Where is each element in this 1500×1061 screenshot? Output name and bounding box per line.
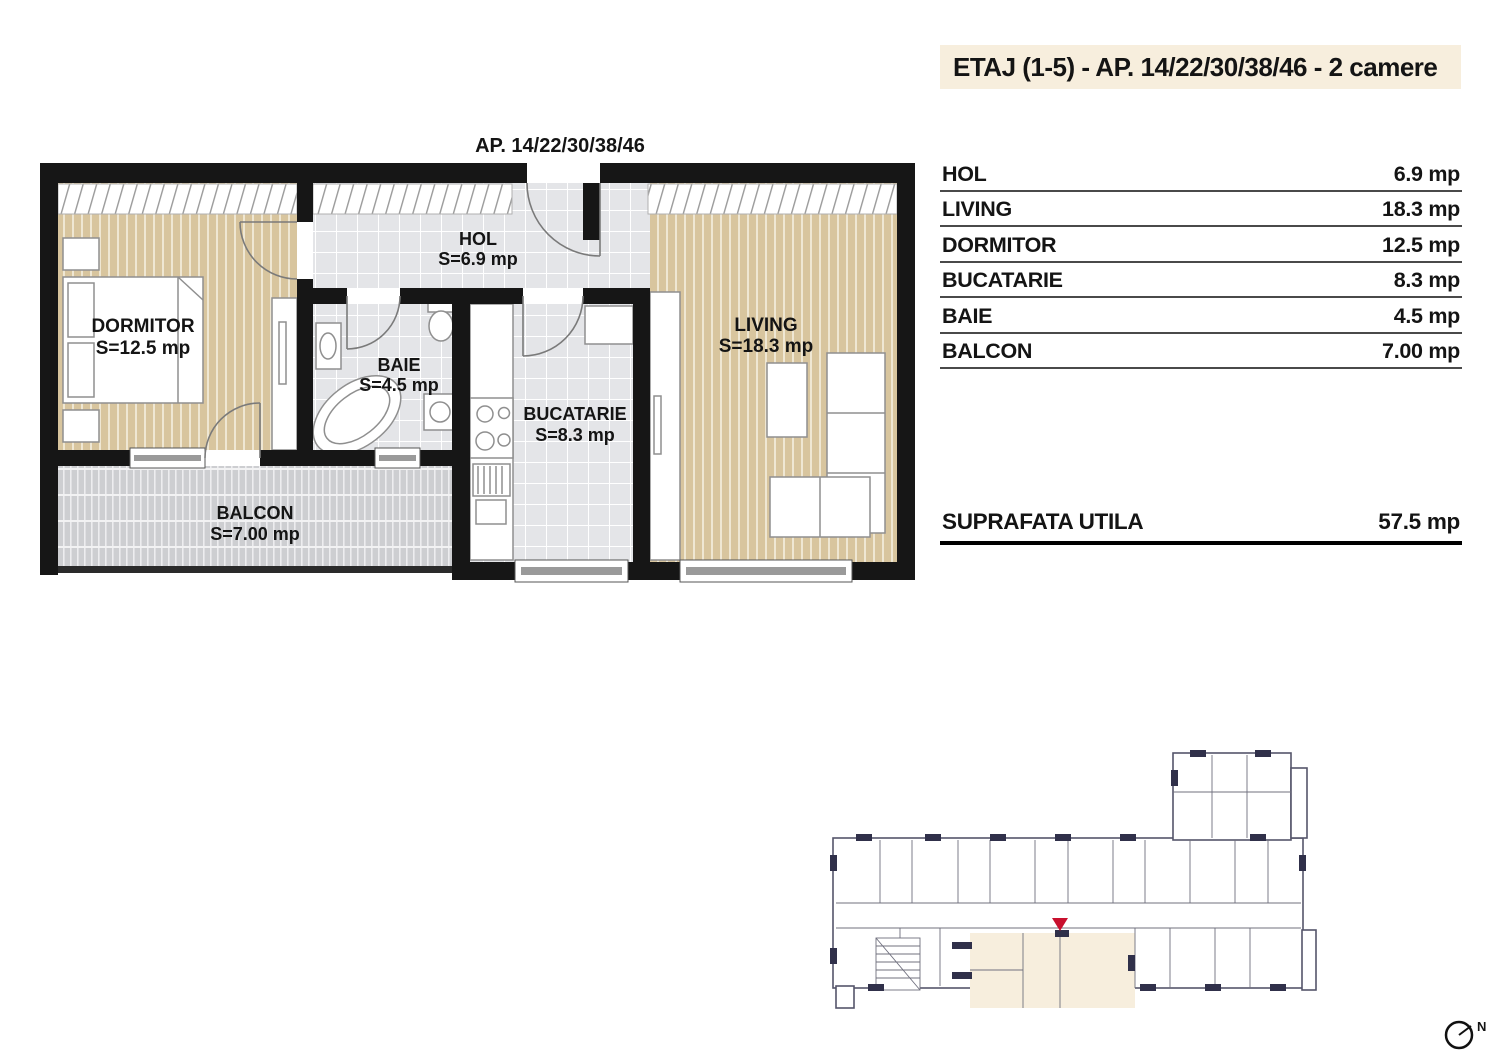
- area-row-value: 4.5 mp: [1394, 304, 1460, 329]
- wardrobe-icon: [58, 184, 297, 214]
- kitchen-sink-icon: [473, 464, 510, 524]
- wardrobe-hatch-bands: [58, 184, 897, 214]
- room-label-living: LIVING: [734, 315, 797, 336]
- apartment-plan-page: AP. 14/22/30/38/46 DORMITOR S=12.5 mp BA…: [0, 0, 1500, 1061]
- wardrobe-icon: [313, 184, 512, 214]
- area-row: BALCON 7.00 mp: [940, 334, 1462, 370]
- floor-header: ETAJ (1-5) - AP. 14/22/30/38/46 - 2 came…: [940, 45, 1461, 89]
- area-table: HOL 6.9 mp LIVING 18.3 mp DORMITOR 12.5 …: [940, 156, 1462, 369]
- window-glyph: [375, 448, 420, 468]
- area-row-label: BALCON: [942, 339, 1032, 364]
- area-row: HOL 6.9 mp: [940, 156, 1462, 192]
- room-area-bucatarie: S=8.3 mp: [535, 425, 615, 445]
- room-area-living: S=18.3 mp: [719, 336, 814, 357]
- room-label-balcon: BALCON: [217, 503, 294, 523]
- room-label-bucatarie: BUCATARIE: [523, 404, 626, 424]
- area-row: DORMITOR 12.5 mp: [940, 227, 1462, 263]
- area-row-value: 7.00 mp: [1382, 339, 1460, 364]
- sink-icon: [316, 323, 341, 369]
- nightstand-icon: [63, 410, 99, 442]
- toilet-icon: [428, 300, 454, 341]
- total-row: SUPRAFATA UTILA 57.5 mp: [940, 508, 1462, 545]
- radiator-icon: [654, 396, 661, 454]
- area-row-label: BAIE: [942, 304, 992, 329]
- stove-icon: [470, 398, 513, 458]
- area-row-label: DORMITOR: [942, 233, 1056, 258]
- nightstand-icon: [63, 238, 99, 270]
- area-row: LIVING 18.3 mp: [940, 192, 1462, 228]
- total-label: SUPRAFATA UTILA: [942, 509, 1143, 535]
- area-row-label: LIVING: [942, 197, 1012, 222]
- building-keyplan: N: [830, 750, 1486, 1048]
- total-value: 57.5 mp: [1378, 509, 1460, 535]
- room-area-balcon: S=7.00 mp: [210, 524, 300, 544]
- area-row: BUCATARIE 8.3 mp: [940, 263, 1462, 299]
- area-row-value: 18.3 mp: [1382, 197, 1460, 222]
- room-label-dormitor: DORMITOR: [91, 316, 194, 337]
- balcony-edge: [58, 566, 452, 573]
- compass-north-label: N: [1477, 1019, 1486, 1034]
- room-area-hol: S=6.9 mp: [438, 249, 518, 269]
- wardrobe-icon: [648, 184, 897, 214]
- plan-title: AP. 14/22/30/38/46: [475, 135, 645, 157]
- compass-icon: N: [1446, 1019, 1486, 1048]
- room-area-dormitor: S=12.5 mp: [96, 338, 191, 359]
- area-row-value: 6.9 mp: [1394, 162, 1460, 187]
- area-row: BAIE 4.5 mp: [940, 298, 1462, 334]
- washing-machine-icon: [424, 394, 456, 430]
- area-row-label: BUCATARIE: [942, 268, 1063, 293]
- area-row-value: 8.3 mp: [1394, 268, 1460, 293]
- window-glyph: [130, 448, 205, 468]
- window-glyph: [680, 560, 852, 582]
- fridge-icon: [585, 306, 633, 344]
- keyplan-highlight-unit: [970, 933, 1135, 1008]
- radiator-icon: [279, 322, 286, 384]
- coffee-table-icon: [767, 363, 807, 437]
- room-label-baie: BAIE: [377, 355, 420, 375]
- room-label-hol: HOL: [459, 229, 497, 249]
- room-area-baie: S=4.5 mp: [359, 375, 439, 395]
- keyplan-stairs: [876, 938, 920, 990]
- area-row-value: 12.5 mp: [1382, 233, 1460, 258]
- area-row-label: HOL: [942, 162, 986, 187]
- floor-header-title: ETAJ (1-5) - AP. 14/22/30/38/46 - 2 came…: [953, 52, 1437, 83]
- window-glyph: [515, 560, 628, 582]
